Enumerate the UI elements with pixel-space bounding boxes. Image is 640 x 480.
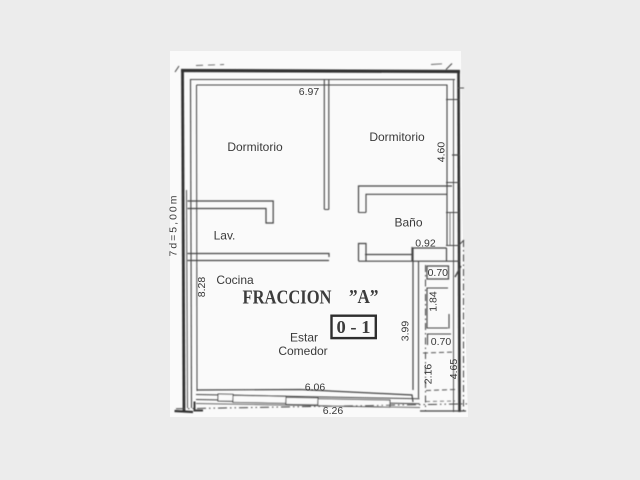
svg-text:0.70: 0.70 <box>428 267 449 279</box>
svg-text:0.70: 0.70 <box>431 336 452 348</box>
svg-text:1.84: 1.84 <box>428 291 440 312</box>
svg-text:4.65: 4.65 <box>448 359 460 380</box>
svg-text:6.26: 6.26 <box>323 405 344 417</box>
svg-text:Baño: Baño <box>394 216 422 230</box>
svg-text:Dormitorio: Dormitorio <box>369 130 425 144</box>
svg-text:2.16: 2.16 <box>423 364 435 385</box>
svg-text:0 - 1: 0 - 1 <box>337 317 371 337</box>
svg-text:0.92: 0.92 <box>415 238 436 250</box>
svg-text:6.06: 6.06 <box>305 382 326 394</box>
svg-text:Lav.: Lav. <box>214 229 236 243</box>
svg-text:FRACCION: FRACCION <box>243 288 332 309</box>
svg-text:6.97: 6.97 <box>299 86 320 98</box>
svg-text:8.28: 8.28 <box>196 277 208 298</box>
svg-text:Dormitorio: Dormitorio <box>227 140 283 154</box>
svg-text:Estar: Estar <box>290 331 318 345</box>
svg-text:3.99: 3.99 <box>400 321 412 342</box>
svg-text:”A”: ”A” <box>349 287 379 308</box>
svg-text:7d=5,00m: 7d=5,00m <box>168 194 180 257</box>
svg-text:4.60: 4.60 <box>436 142 448 163</box>
svg-text:Comedor: Comedor <box>278 344 327 358</box>
svg-text:Cocina: Cocina <box>216 273 254 287</box>
